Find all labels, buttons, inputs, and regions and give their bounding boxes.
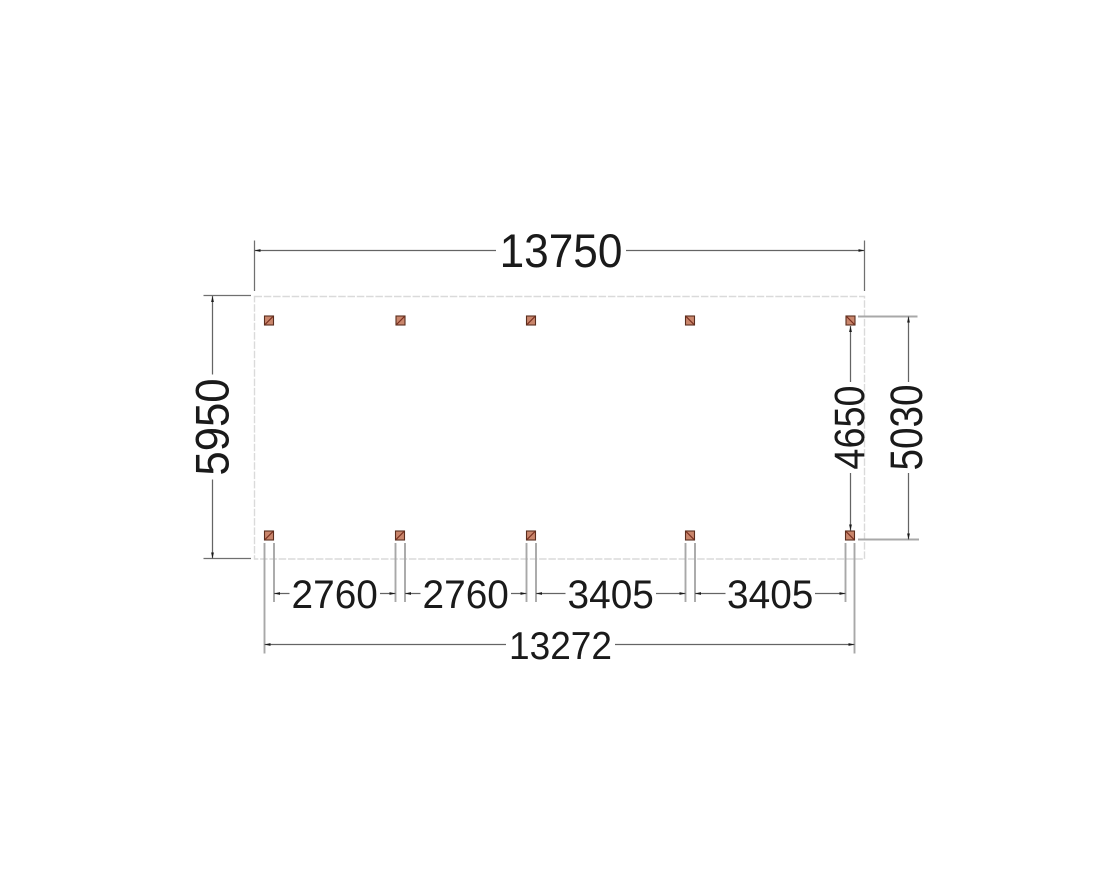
svg-text:13272: 13272 <box>509 625 612 668</box>
svg-text:2760: 2760 <box>423 573 509 618</box>
svg-text:5030: 5030 <box>881 384 931 470</box>
svg-text:3405: 3405 <box>727 573 813 618</box>
svg-text:2760: 2760 <box>292 573 378 618</box>
svg-text:13750: 13750 <box>500 225 623 278</box>
svg-text:5950: 5950 <box>186 378 239 475</box>
svg-text:3405: 3405 <box>568 573 654 618</box>
svg-text:4650: 4650 <box>825 385 874 469</box>
